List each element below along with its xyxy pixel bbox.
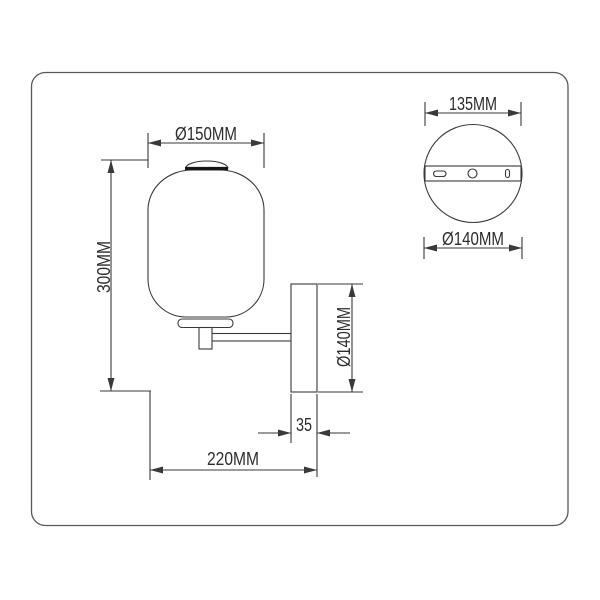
shade-diameter-label: Ø150MM xyxy=(175,124,237,144)
bracket-width-label: 135MM xyxy=(449,94,497,114)
lamp-shade-outline xyxy=(148,170,264,317)
technical-drawing-page: Ø150MM 300MM Ø140MM 35 220MM xyxy=(0,0,600,600)
arrowhead-left xyxy=(424,245,437,252)
wall-arm xyxy=(205,334,291,342)
overall-projection-label: 220MM xyxy=(207,449,259,469)
arrowhead-right xyxy=(508,110,521,117)
dim-plate-diameter: Ø140MM xyxy=(424,229,522,259)
backplate-height-label: Ø140MM xyxy=(334,307,354,367)
arrowhead-left xyxy=(148,140,161,147)
arrowhead-right xyxy=(304,467,317,474)
arrowhead-down xyxy=(349,379,356,392)
arrowhead-right xyxy=(509,245,522,252)
arrowhead-up xyxy=(349,284,356,297)
mounting-hole-center xyxy=(468,169,477,178)
arrowhead-left xyxy=(317,430,330,437)
dim-backplate-height: Ø140MM xyxy=(318,284,363,392)
backplate-depth-label: 35 xyxy=(296,415,312,435)
plate-diameter-label: Ø140MM xyxy=(442,229,504,249)
side-view xyxy=(148,161,317,477)
dim-overall-projection: 220MM xyxy=(150,391,317,480)
arrowhead-right xyxy=(251,140,264,147)
mounting-slot-left xyxy=(434,171,447,177)
arrowhead-left xyxy=(425,110,438,117)
wall-lamp-dimension-drawing: Ø150MM 300MM Ø140MM 35 220MM xyxy=(0,0,600,600)
arrowhead-right xyxy=(278,430,291,437)
wall-plate-side xyxy=(291,284,317,392)
dim-overall-height: 300MM xyxy=(94,160,151,391)
arrowhead-up xyxy=(108,160,115,173)
overall-height-label: 300MM xyxy=(94,241,114,293)
arrowhead-left xyxy=(150,467,163,474)
lamp-stem xyxy=(199,328,212,350)
dim-backplate-depth: 35 xyxy=(258,415,350,437)
mounting-slot-right xyxy=(506,170,510,178)
shade-bottom-cap xyxy=(178,319,233,328)
backplate-face-view xyxy=(424,125,522,223)
dim-bracket-width: 135MM xyxy=(425,94,521,126)
arrowhead-down xyxy=(108,378,115,391)
